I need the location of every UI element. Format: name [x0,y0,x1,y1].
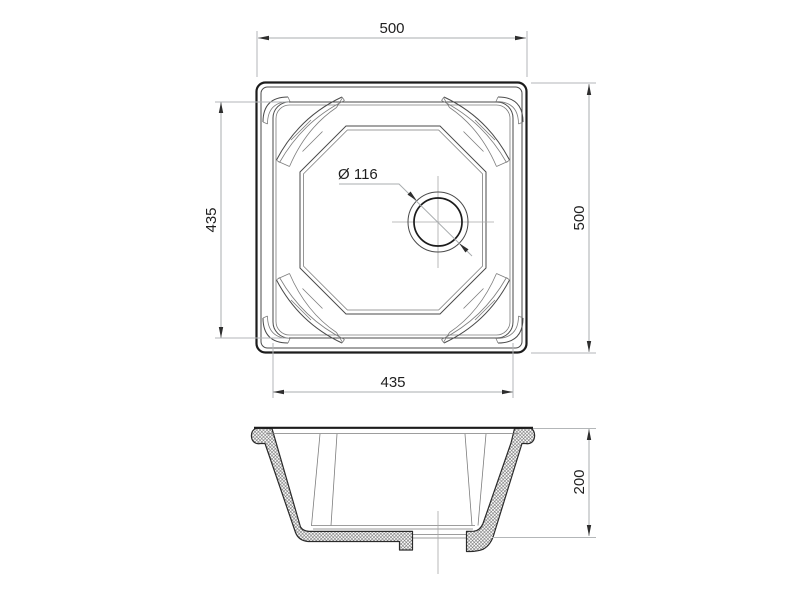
corner-detail-bottom-right [442,274,524,344]
dim-label-top-width: 500 [379,20,404,37]
section-view [251,428,534,574]
wall-section-left [251,428,412,550]
basin-bottom-octagon-inner-line [304,130,483,310]
basin-opening [273,102,513,338]
corner-detail-top-left [263,97,345,167]
dimension-right-height: 500 [531,83,596,353]
dimension-bottom-inner-width: 435 [273,343,513,398]
far-wall-projection-lines [312,434,487,526]
dimension-top-width: 500 [257,20,527,77]
drain [392,176,494,268]
corner-detail-bottom-left [263,274,345,344]
basin-opening-inner-line [276,105,510,335]
sink-technical-drawing: 500 435 500 435 Ø 116 [0,0,800,600]
basin-bottom-octagon [300,126,486,314]
drain-centerlines [392,176,494,268]
wall-section-right [467,428,535,552]
dim-label-left-inner-height: 435 [203,207,220,232]
far-bottom-edge-lines [311,526,475,530]
dim-label-right-height: 500 [571,205,588,230]
dim-label-drain-diameter: Ø 116 [338,166,378,183]
top-view [257,83,527,353]
corner-detail-top-right [442,97,524,167]
drain-recess-far-lip-lines [413,535,467,539]
dim-label-bottom-inner-width: 435 [380,374,405,391]
sink-drawing-svg: 500 435 500 435 Ø 116 [0,0,800,600]
dim-label-section-height: 200 [571,469,588,494]
